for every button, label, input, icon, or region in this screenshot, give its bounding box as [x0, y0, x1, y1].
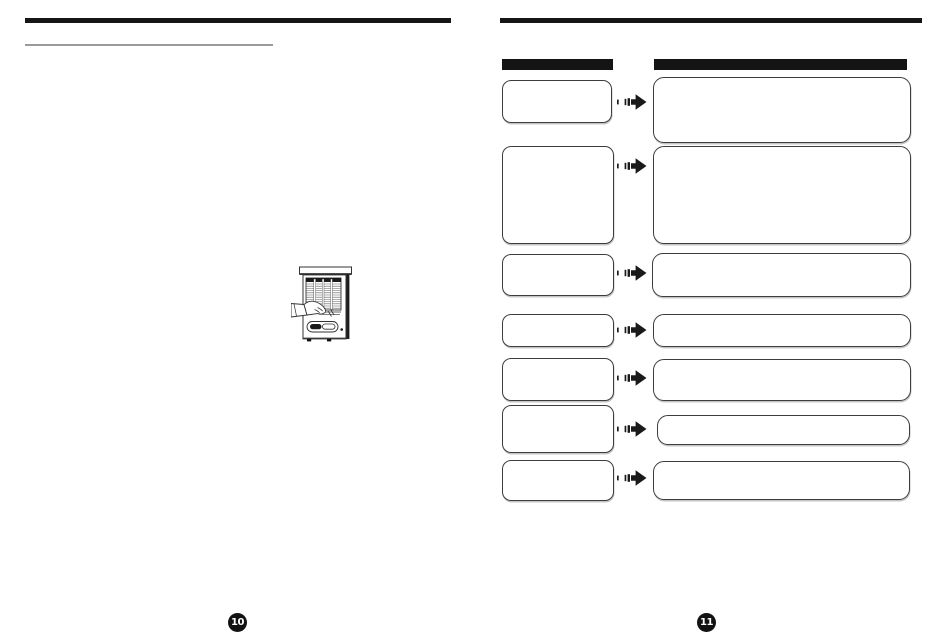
page-number-right: 11 — [697, 613, 716, 632]
flow-arrow-icon — [617, 92, 649, 112]
flow-arrow-icon — [617, 320, 649, 340]
air-conditioner-illustration — [291, 264, 353, 346]
cause-remedy-box-7 — [653, 461, 910, 500]
symptom-column-header-bar — [502, 59, 613, 70]
cause-remedy-column-header-bar — [654, 59, 907, 70]
symptom-box-3 — [502, 254, 614, 296]
flow-arrow-icon — [617, 263, 649, 283]
flow-arrow-icon — [617, 368, 649, 388]
flow-arrow-icon — [617, 419, 649, 439]
page-number-left: 10 — [228, 613, 247, 632]
flow-arrow-6 — [617, 419, 649, 439]
unit-foot — [327, 339, 331, 342]
cause-remedy-box-5 — [653, 359, 911, 401]
right-page-top-rule — [500, 18, 922, 23]
symptom-box-4 — [502, 314, 614, 347]
control-button-dark — [310, 324, 322, 329]
manual-spread: 10 11 — [0, 0, 950, 634]
symptom-box-6 — [502, 405, 614, 453]
unit-foot — [307, 339, 311, 342]
flow-arrow-2 — [617, 156, 649, 176]
unit-top-cap — [300, 267, 352, 275]
cause-remedy-box-4 — [653, 314, 911, 347]
symptom-box-5 — [502, 358, 614, 401]
symptom-box-7 — [502, 460, 614, 501]
symptom-box-1 — [502, 80, 612, 123]
flow-arrow-5 — [617, 368, 649, 388]
indicator-dot — [340, 328, 343, 331]
cause-remedy-box-6 — [657, 415, 910, 445]
flow-arrow-icon — [617, 468, 649, 488]
section-title-underline — [25, 44, 273, 46]
flow-arrow-4 — [617, 320, 649, 340]
symptom-box-2 — [502, 146, 614, 244]
left-page-top-rule — [25, 18, 451, 23]
flow-arrow-3 — [617, 263, 649, 283]
cause-remedy-box-1 — [653, 77, 911, 143]
unit-side-panel — [346, 275, 349, 340]
cause-remedy-box-2 — [653, 146, 911, 244]
flow-arrow-icon — [617, 156, 649, 176]
control-button-light — [323, 324, 336, 329]
flow-arrow-1 — [617, 92, 649, 112]
flow-arrow-7 — [617, 468, 649, 488]
cause-remedy-box-3 — [652, 253, 911, 297]
